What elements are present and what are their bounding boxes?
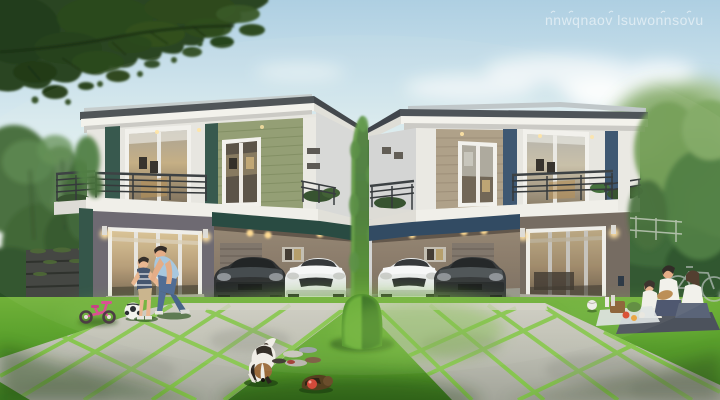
svg-text:nnwqnaov lsuwonnsovu: nnwqnaov lsuwonnsovu — [545, 12, 704, 28]
